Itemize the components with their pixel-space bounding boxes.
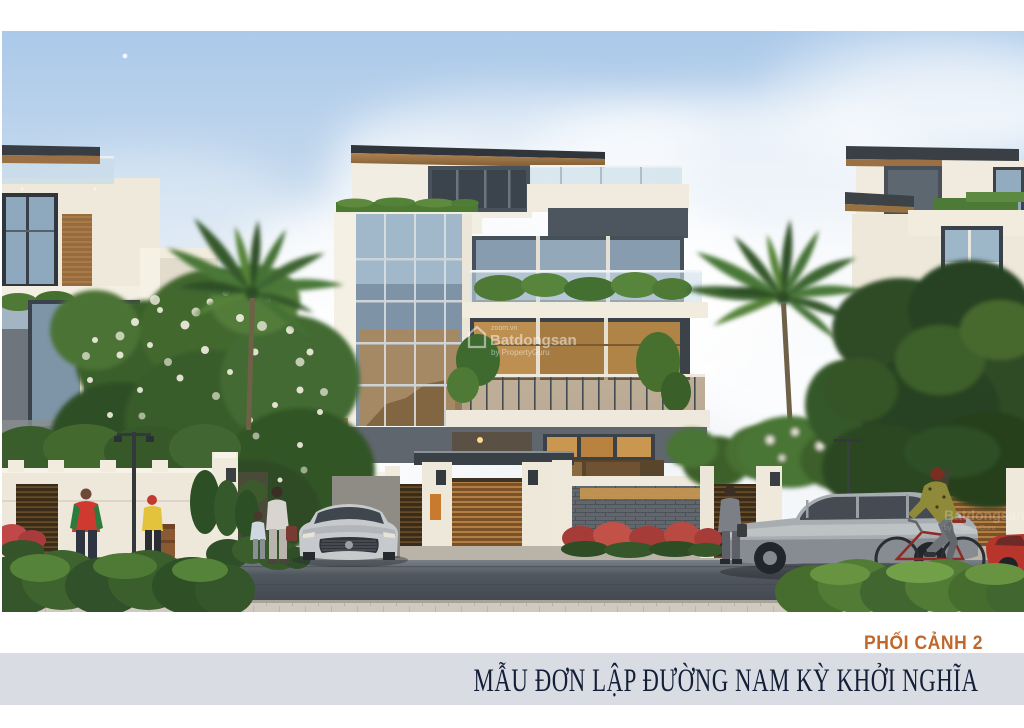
svg-text:zoom.vn: zoom.vn [491, 325, 518, 332]
svg-text:by PropertyGuru: by PropertyGuru [491, 348, 550, 357]
svg-text:by PropertyGuru: by PropertyGuru [944, 525, 995, 532]
svg-text:Batdongsan: Batdongsan [944, 507, 1024, 523]
svg-text:PHỐI CẢNH 2: PHỐI CẢNH 2 [864, 632, 983, 654]
svg-text:Batdongsan: Batdongsan [490, 332, 577, 349]
svg-text:MẪU ĐƠN LẬP ĐƯỜNG NAM KỲ KHỞI: MẪU ĐƠN LẬP ĐƯỜNG NAM KỲ KHỞI NGHĨA [474, 660, 979, 699]
